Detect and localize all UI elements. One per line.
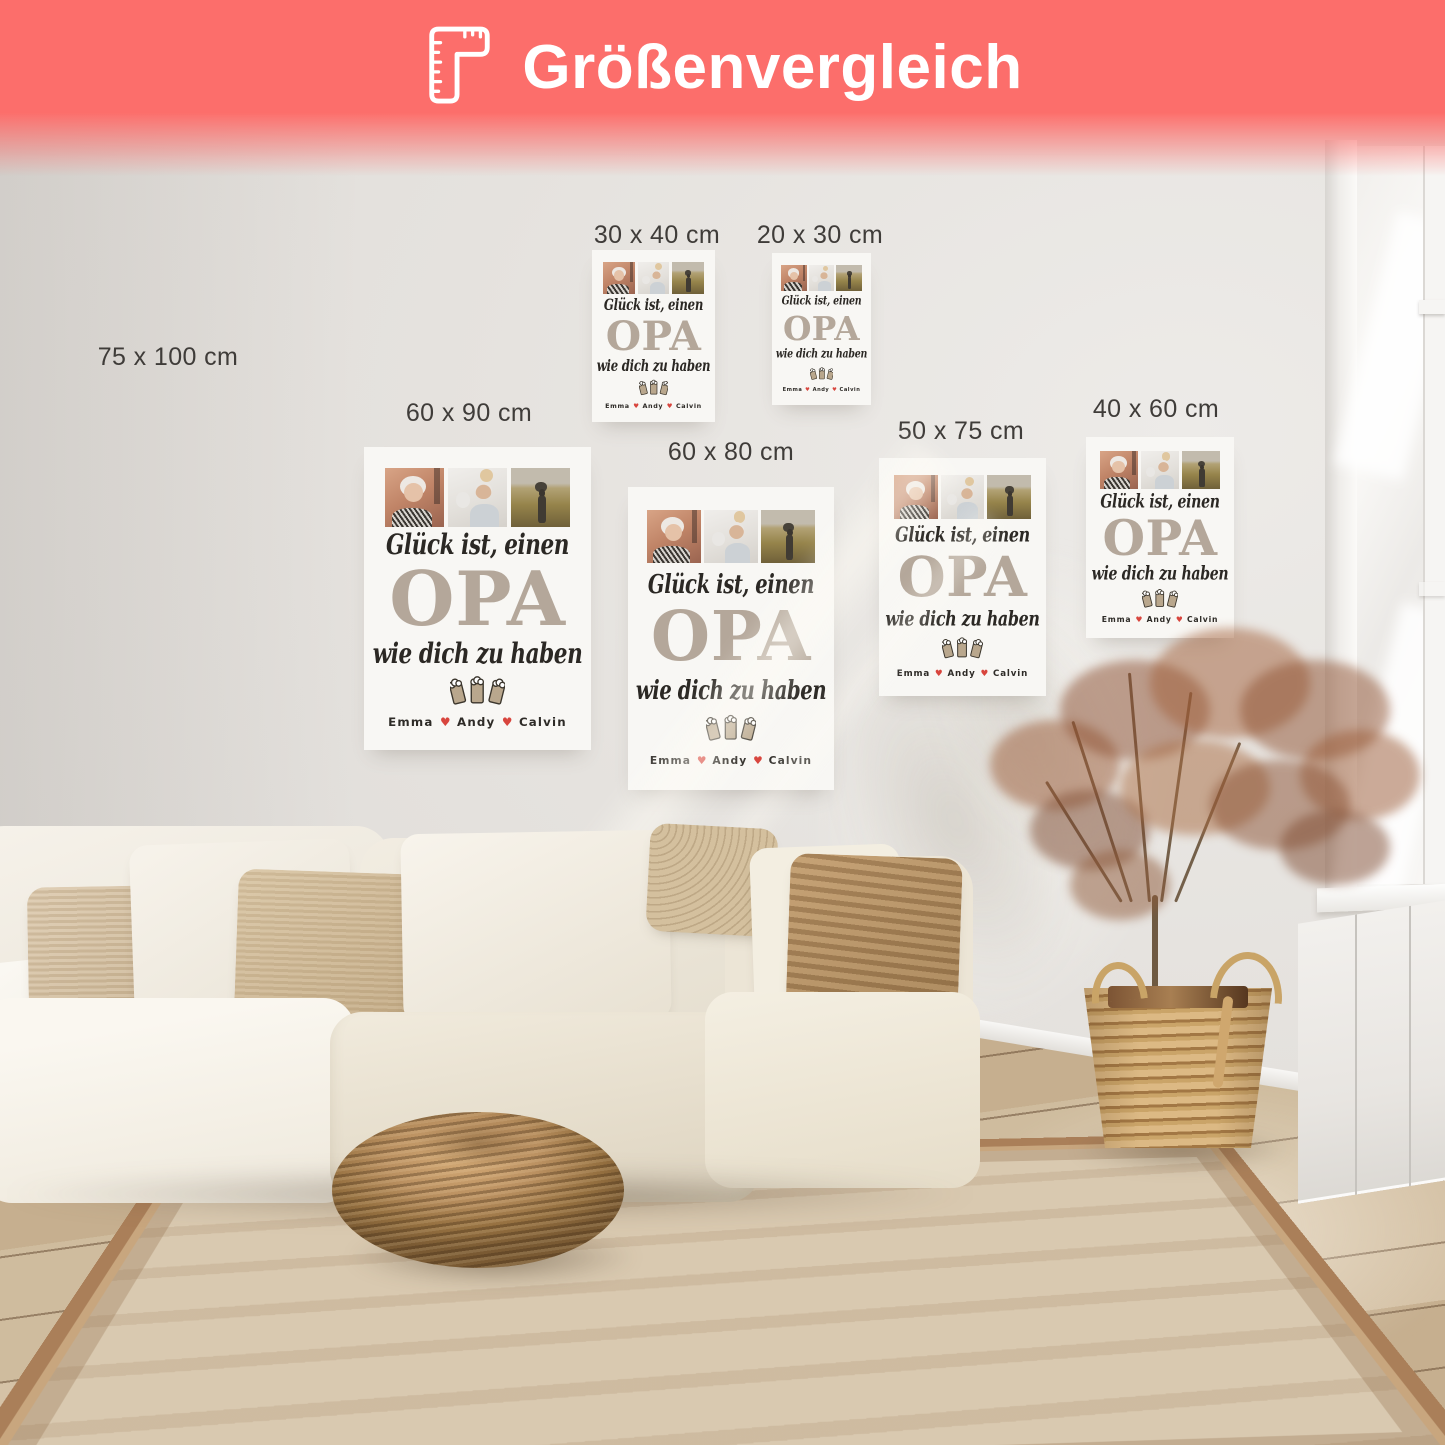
poster-line2: wie dich zu haben	[636, 678, 826, 704]
photo-detail	[712, 532, 725, 546]
photo-detail	[475, 482, 492, 500]
photo-detail	[900, 505, 930, 519]
grandparents-with-grandchild-photo	[1141, 451, 1179, 489]
name-emma: Emma	[605, 402, 630, 410]
photo-detail	[947, 494, 957, 505]
grandparents-with-grandchild-photo	[448, 468, 507, 527]
photo-detail	[665, 524, 682, 541]
plant-foliage	[1280, 810, 1390, 885]
three-beer-mugs-icon	[450, 673, 504, 707]
heart-icon: ♥	[440, 715, 451, 729]
poster-opa-word: OPA	[898, 551, 1028, 603]
photo-detail	[1158, 460, 1169, 472]
poster-names: Emma♥Andy♥Calvin	[897, 669, 1028, 679]
name-emma: Emma	[1102, 615, 1132, 624]
photo-detail	[820, 271, 827, 279]
grandma-laughing-photo	[603, 262, 635, 294]
poster-line2: wie dich zu haben	[1092, 565, 1229, 584]
photo-detail	[392, 508, 432, 527]
photo-detail	[725, 543, 751, 563]
grandma-laughing-photo	[647, 510, 701, 564]
name-calvin: Calvin	[769, 754, 812, 767]
heart-icon: ♥	[753, 754, 763, 767]
three-beer-mugs-icon	[942, 635, 982, 660]
heart-icon: ♥	[935, 669, 943, 679]
poster-line1: Glück ist, einen	[782, 295, 862, 307]
photo-detail	[1132, 451, 1136, 475]
poster-opa-word: OPA	[651, 605, 811, 670]
poster-50x75: Glück ist, einen OPA wie dich zu haben E…	[879, 458, 1046, 696]
window-mullion	[1419, 300, 1445, 314]
photo-detail	[803, 265, 806, 281]
poster-line1: Glück ist, einen	[1100, 493, 1219, 512]
poster-60x80: Glück ist, einen OPA wie dich zu haben E…	[628, 487, 834, 790]
grandparents-with-grandchild-photo	[704, 510, 758, 564]
plant-foliage	[1070, 850, 1170, 920]
grandparents-with-grandchild-photo	[941, 475, 984, 518]
photo-detail	[470, 504, 498, 526]
name-emma: Emma	[388, 715, 433, 729]
window-sash	[1423, 146, 1445, 884]
photo-detail	[818, 281, 830, 291]
poster-30x40: Glück ist, einen OPA wie dich zu haben E…	[592, 250, 715, 422]
heart-icon: ♥	[1136, 615, 1143, 624]
poster-line1: Glück ist, einen	[648, 571, 814, 597]
photo-detail	[614, 270, 624, 280]
poster-line1: Glück ist, einen	[895, 524, 1030, 545]
size-label-40x60: 40 x 60 cm	[1016, 395, 1296, 424]
poster-20x30: Glück ist, einen OPA wie dich zu haben E…	[772, 253, 871, 405]
heart-icon: ♥	[502, 715, 513, 729]
poster-names: Emma♥Andy♥Calvin	[1102, 615, 1218, 624]
poster-names: Emma♥Andy♥Calvin	[650, 754, 812, 767]
poster-line2: wie dich zu haben	[597, 359, 711, 374]
photo-detail	[961, 486, 973, 499]
heart-icon: ♥	[805, 387, 810, 393]
photo-detail	[404, 483, 423, 502]
three-beer-mugs-icon	[706, 712, 755, 743]
grandpa-carrying-child-in-field-photo	[1182, 451, 1220, 489]
photo-detail	[538, 496, 546, 523]
photo-detail	[692, 510, 697, 543]
name-calvin: Calvin	[993, 669, 1028, 679]
name-calvin: Calvin	[1187, 615, 1218, 624]
heart-icon: ♥	[633, 402, 639, 410]
grandma-laughing-photo	[894, 475, 937, 518]
poster-line1: Glück ist, einen	[604, 298, 703, 313]
photo-detail	[790, 272, 798, 280]
photo-detail	[909, 487, 923, 501]
poster-names: Emma♥Andy♥Calvin	[783, 387, 861, 393]
photo-detail	[1199, 469, 1204, 487]
poster-content: Glück ist, einen OPA wie dich zu haben E…	[364, 447, 591, 750]
poster-content: Glück ist, einen OPA wie dich zu haben E…	[592, 250, 715, 422]
grandpa-carrying-child-in-field-photo	[511, 468, 570, 527]
window-mullion	[1419, 582, 1445, 596]
poster-content: Glück ist, einen OPA wie dich zu haben E…	[772, 253, 871, 405]
three-beer-mugs-icon	[639, 378, 669, 396]
grandma-laughing-photo	[781, 265, 807, 291]
photo-detail	[729, 522, 744, 538]
heart-icon: ♥	[980, 669, 988, 679]
three-beer-mugs-icon	[1142, 587, 1178, 609]
poster-photo-strip	[647, 510, 815, 564]
name-emma: Emma	[783, 387, 803, 393]
photo-detail	[931, 475, 935, 502]
poster-names: Emma♥Andy♥Calvin	[388, 715, 567, 729]
name-calvin: Calvin	[840, 387, 861, 393]
photo-detail	[1146, 467, 1155, 477]
ruler-icon	[422, 25, 496, 109]
heart-icon: ♥	[697, 754, 707, 767]
grandpa-carrying-child-in-field-photo	[836, 265, 862, 291]
photo-detail	[650, 282, 665, 294]
area-rug	[0, 1134, 1445, 1445]
photo-detail	[652, 270, 661, 280]
name-andy: Andy	[947, 669, 975, 679]
size-comparison-product-image: 75 x 100 cm 30 x 40 cm 20 x 30 cm 60 x 9…	[0, 0, 1445, 1445]
poster-photo-strip	[385, 468, 570, 527]
name-andy: Andy	[813, 387, 830, 393]
grandpa-carrying-child-in-field-photo	[987, 475, 1030, 518]
name-andy: Andy	[712, 754, 747, 767]
photo-detail	[456, 492, 470, 507]
poster-line2: wie dich zu haben	[776, 349, 867, 361]
photo-detail	[630, 262, 633, 282]
heart-icon: ♥	[1176, 615, 1183, 624]
poster-content: Glück ist, einen OPA wie dich zu haben E…	[879, 458, 1046, 696]
poster-opa-word: OPA	[783, 313, 860, 344]
size-comparison-banner: Größenvergleich	[0, 0, 1445, 176]
photo-detail	[1007, 496, 1013, 516]
grandpa-carrying-child-in-field-photo	[761, 510, 815, 564]
grandpa-carrying-child-in-field-photo	[672, 262, 704, 294]
poster-60x90: Glück ist, einen OPA wie dich zu haben E…	[364, 447, 591, 750]
photo-detail	[784, 282, 801, 290]
name-emma: Emma	[897, 669, 930, 679]
poster-opa-word: OPA	[1102, 515, 1217, 561]
photo-detail	[957, 502, 978, 518]
poster-photo-strip	[1100, 451, 1221, 489]
photo-detail	[480, 469, 493, 482]
page-title: Größenvergleich	[522, 32, 1022, 103]
photo-detail	[734, 511, 746, 523]
photo-detail	[848, 277, 852, 289]
grandparents-with-grandchild-photo	[638, 262, 670, 294]
photo-detail	[965, 477, 975, 487]
rattan-pouf	[332, 1112, 624, 1268]
poster-line1: Glück ist, einen	[386, 531, 569, 559]
name-emma: Emma	[650, 754, 691, 767]
poster-line2: wie dich zu haben	[373, 640, 583, 668]
poster-40x60: Glück ist, einen OPA wie dich zu haben E…	[1086, 437, 1234, 638]
poster-line2: wie dich zu haben	[885, 609, 1039, 630]
photo-detail	[653, 546, 689, 563]
photo-detail	[812, 276, 818, 283]
photo-detail	[1104, 477, 1130, 489]
photo-detail	[786, 535, 793, 560]
grandparents-with-grandchild-photo	[809, 265, 835, 291]
heart-icon: ♥	[667, 402, 673, 410]
size-label-75x100: 75 x 100 cm	[28, 343, 308, 372]
grandma-laughing-photo	[385, 468, 444, 527]
cabinet-seam	[1355, 914, 1357, 1194]
photo-detail	[1155, 475, 1173, 490]
name-andy: Andy	[1147, 615, 1172, 624]
poster-opa-word: OPA	[389, 564, 566, 635]
poster-photo-strip	[603, 262, 703, 294]
poster-content: Glück ist, einen OPA wie dich zu haben E…	[628, 487, 834, 790]
banner-content: Größenvergleich	[422, 14, 1022, 120]
photo-detail	[686, 278, 690, 293]
photo-detail	[642, 276, 650, 284]
heart-icon: ♥	[832, 387, 837, 393]
photo-detail	[607, 284, 629, 294]
three-beer-mugs-icon	[810, 366, 834, 381]
poster-photo-strip	[781, 265, 862, 291]
poster-names: Emma♥Andy♥Calvin	[605, 402, 702, 410]
size-label-60x90: 60 x 90 cm	[329, 399, 609, 428]
name-andy: Andy	[642, 402, 663, 410]
photo-detail	[434, 468, 440, 505]
name-calvin: Calvin	[519, 715, 567, 729]
poster-content: Glück ist, einen OPA wie dich zu haben E…	[1086, 437, 1234, 638]
grandma-laughing-photo	[1100, 451, 1138, 489]
size-label-20x30: 20 x 30 cm	[680, 221, 960, 250]
rattan-basket	[1082, 988, 1274, 1148]
poster-opa-word: OPA	[606, 317, 702, 356]
radiator-cabinet	[1298, 900, 1445, 1204]
poster-photo-strip	[894, 475, 1030, 518]
cabinet-seam	[1409, 906, 1411, 1186]
photo-detail	[1112, 461, 1124, 473]
name-andy: Andy	[457, 715, 495, 729]
name-calvin: Calvin	[676, 402, 702, 410]
